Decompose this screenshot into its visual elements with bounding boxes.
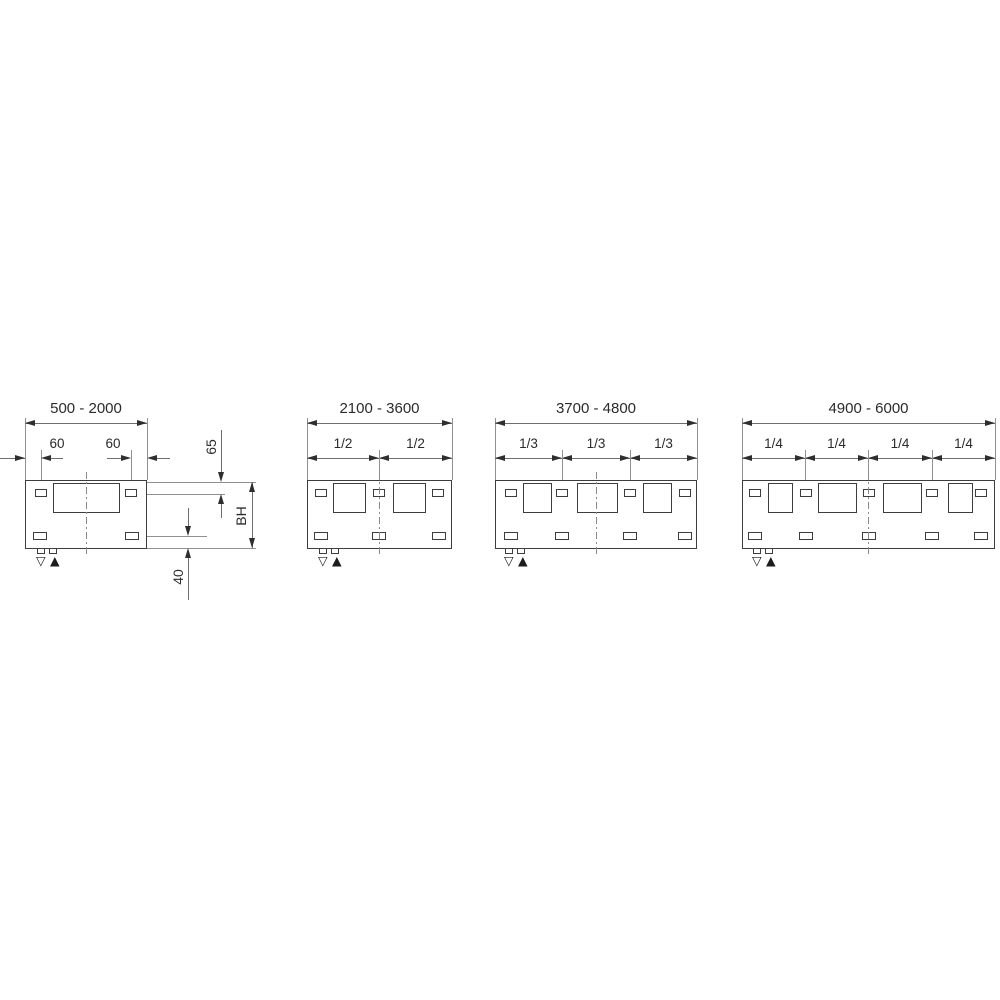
flow-symbol: ▽: [752, 554, 762, 567]
arrowhead-right-icon: [985, 455, 995, 461]
centerline: [868, 472, 869, 554]
arrowhead-right-icon: [985, 420, 995, 426]
arrowhead-right-icon: [795, 455, 805, 461]
heating-element: [818, 483, 857, 513]
arrowhead-left-icon: [805, 455, 815, 461]
mounting-bracket-top: [926, 489, 938, 497]
fraction-label: 1/4: [932, 436, 995, 451]
mounting-bracket-top: [975, 489, 987, 497]
mounting-bracket-bottom: [925, 532, 939, 540]
heating-element: [883, 483, 922, 513]
fraction-label: 1/4: [742, 436, 805, 451]
arrowhead-left-icon: [742, 420, 752, 426]
arrowhead-left-icon: [932, 455, 942, 461]
extension-line: [995, 418, 996, 480]
panel-4900-6000: 4900 - 6000 1/4 1/4 1/4 1/4: [0, 0, 1000, 1000]
arrowhead-right-icon: [922, 455, 932, 461]
dimension-line: [742, 423, 995, 424]
mounting-bracket-top: [863, 489, 875, 497]
arrowhead-right-icon: [858, 455, 868, 461]
mounting-bracket-bottom: [974, 532, 988, 540]
mounting-bracket-bottom: [862, 532, 876, 540]
mounting-bracket-bottom: [748, 532, 762, 540]
mounting-bracket-top: [800, 489, 812, 497]
fraction-label: 1/4: [805, 436, 868, 451]
fraction-label: 1/4: [868, 436, 932, 451]
mounting-bracket-bottom: [799, 532, 813, 540]
heating-element: [768, 483, 793, 513]
range-label: 4900 - 6000: [742, 401, 995, 417]
arrowhead-left-icon: [742, 455, 752, 461]
heating-element: [948, 483, 973, 513]
mounting-bracket-top: [749, 489, 761, 497]
return-symbol: ▲: [766, 554, 776, 567]
technical-drawing-canvas: 500 - 2000 60 60 ▽ ▲: [0, 0, 1000, 1000]
arrowhead-left-icon: [868, 455, 878, 461]
